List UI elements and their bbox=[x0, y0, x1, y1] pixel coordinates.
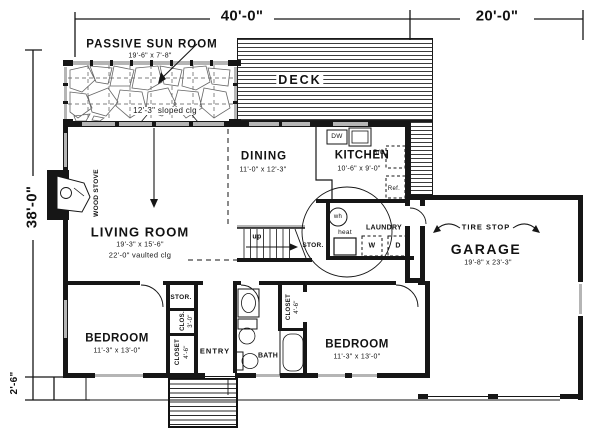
room-sunroom-name: PASSIVE SUN ROOM bbox=[86, 39, 217, 51]
closet-small-size: 3'-0" bbox=[188, 314, 194, 327]
wood-stove-label: WOOD STOVE bbox=[94, 169, 101, 217]
room-living-ceiling: 22'-0" vaulted clg bbox=[109, 251, 171, 259]
dim-width-main: 40'-0" bbox=[221, 9, 264, 24]
hall-storage-label: STOR. bbox=[170, 295, 191, 302]
range-oven-label: R/O bbox=[373, 150, 385, 156]
room-garage-size: 19'-8" x 23'-3" bbox=[464, 260, 512, 267]
room-sunroom-ceiling: 12'-3" sloped clg bbox=[131, 107, 199, 115]
room-kitchen-size: 10'-6" x 9'-0" bbox=[337, 166, 380, 173]
room-deck-name: DECK bbox=[276, 74, 323, 87]
dim-depth-main: 38'-0" bbox=[25, 186, 40, 229]
closet-entry-label: CLOSET bbox=[175, 339, 181, 365]
floorplan-linework bbox=[0, 0, 600, 437]
room-dining-name: DINING bbox=[241, 151, 287, 163]
room-garage-name: GARAGE bbox=[451, 242, 521, 256]
room-entry-name: ENTRY bbox=[200, 347, 230, 355]
room-living-size: 19'-3" x 15'-6" bbox=[116, 242, 164, 249]
closet-bedroom-size: 4'-6" bbox=[294, 300, 300, 313]
closet-entry-size: 4'-6" bbox=[184, 345, 190, 358]
tire-stop-label: TIRE STOP bbox=[462, 223, 510, 231]
room-sunroom-size: 19'-6" x 7'-8" bbox=[128, 53, 171, 60]
refrigerator-label: Ref. bbox=[388, 186, 400, 192]
furnace-label: heat bbox=[338, 230, 352, 237]
dim-front-offset: 2'-6" bbox=[10, 371, 20, 394]
dim-width-garage: 20'-0" bbox=[476, 9, 519, 24]
room-bath-name: BATH bbox=[258, 353, 278, 360]
room-bedroom-left-name: BEDROOM bbox=[85, 333, 149, 345]
room-dining-size: 11'-0" x 12'-3" bbox=[239, 167, 286, 174]
water-heater-label: wh bbox=[334, 214, 342, 220]
laundry-label: LAUNDRY bbox=[366, 225, 402, 232]
stairs-up-label: up bbox=[252, 234, 261, 241]
washer-label: W bbox=[369, 243, 376, 250]
room-bedroom-left-size: 11'-3" x 13'-0" bbox=[93, 348, 140, 355]
dryer-label: D bbox=[395, 243, 400, 250]
floor-plan: 40'-0" 20'-0" 38'-0" 2'-6" PASSIVE SUN R… bbox=[0, 0, 600, 437]
room-bedroom-right-size: 11'-3" x 13'-0" bbox=[333, 354, 380, 361]
closet-bedroom-label: CLOSET bbox=[286, 294, 292, 320]
room-bedroom-right-name: BEDROOM bbox=[325, 339, 389, 351]
room-living-name: LIVING ROOM bbox=[91, 226, 189, 239]
stair-storage-label: STOR. bbox=[302, 243, 323, 250]
closet-small-label: CLOS. bbox=[180, 311, 186, 331]
dishwasher-label: DW bbox=[331, 134, 342, 141]
